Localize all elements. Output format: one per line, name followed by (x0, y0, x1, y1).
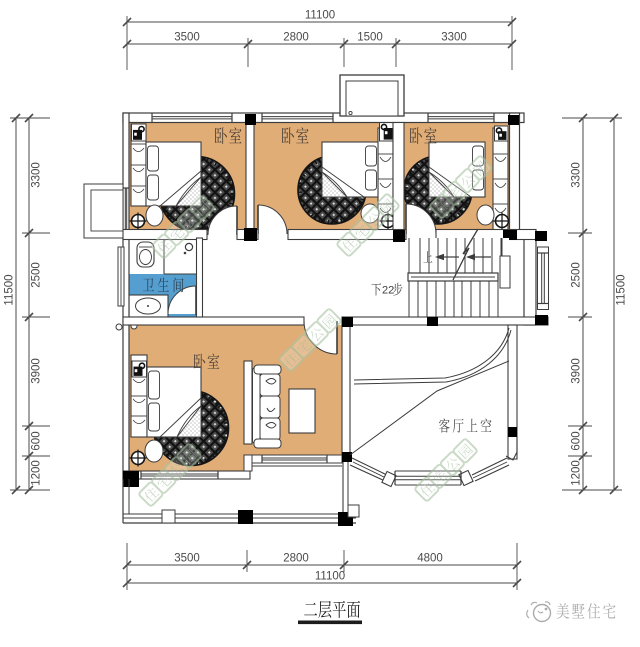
svg-text:4800: 4800 (417, 553, 443, 565)
svg-text:3500: 3500 (174, 32, 200, 44)
svg-text:3300: 3300 (571, 162, 583, 188)
svg-text:3500: 3500 (174, 553, 200, 565)
svg-text:1200: 1200 (31, 460, 43, 486)
svg-text:11500: 11500 (4, 274, 16, 305)
svg-text:3900: 3900 (571, 358, 583, 384)
svg-text:3300: 3300 (31, 162, 43, 188)
svg-text:11100: 11100 (305, 10, 335, 22)
svg-text:600: 600 (31, 431, 43, 450)
svg-text:3300: 3300 (441, 32, 467, 44)
svg-text:2800: 2800 (283, 553, 309, 565)
svg-text:11500: 11500 (616, 274, 628, 305)
svg-text:600: 600 (571, 431, 583, 450)
svg-text:1200: 1200 (571, 460, 583, 486)
svg-text:1500: 1500 (357, 32, 383, 44)
svg-text:2500: 2500 (31, 262, 43, 288)
svg-text:22: 22 (382, 285, 394, 297)
svg-text:2800: 2800 (283, 32, 309, 44)
svg-text:11100: 11100 (315, 571, 345, 583)
svg-text:3900: 3900 (31, 358, 43, 384)
svg-text:2500: 2500 (571, 262, 583, 288)
